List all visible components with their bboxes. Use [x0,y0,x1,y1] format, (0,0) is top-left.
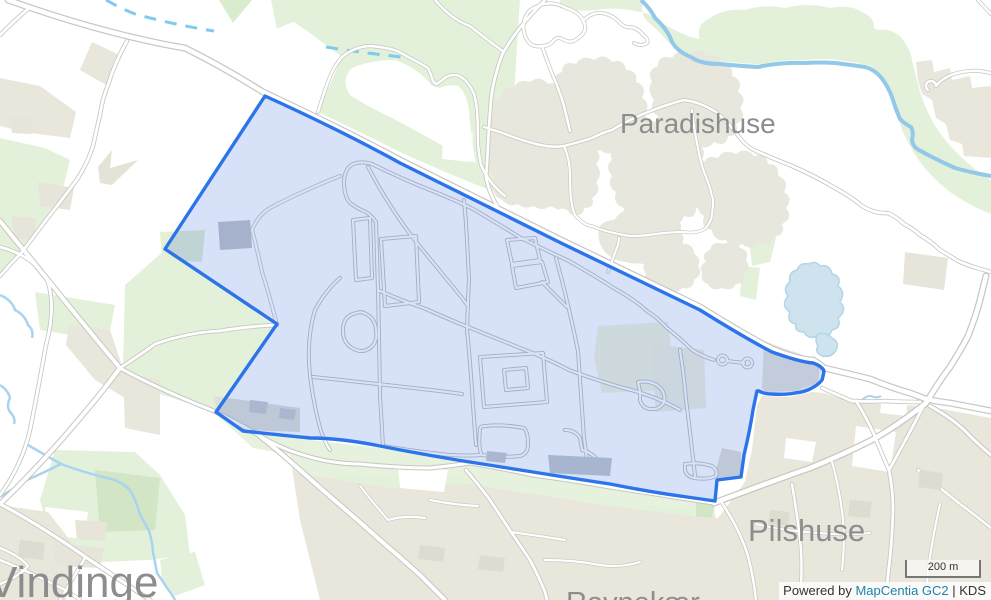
svg-text:Ravnekær: Ravnekær [566,587,700,600]
svg-text:Paradishuse: Paradishuse [620,108,776,139]
svg-text:Pilshuse: Pilshuse [748,513,865,548]
svg-text:Vindinge: Vindinge [0,558,158,600]
